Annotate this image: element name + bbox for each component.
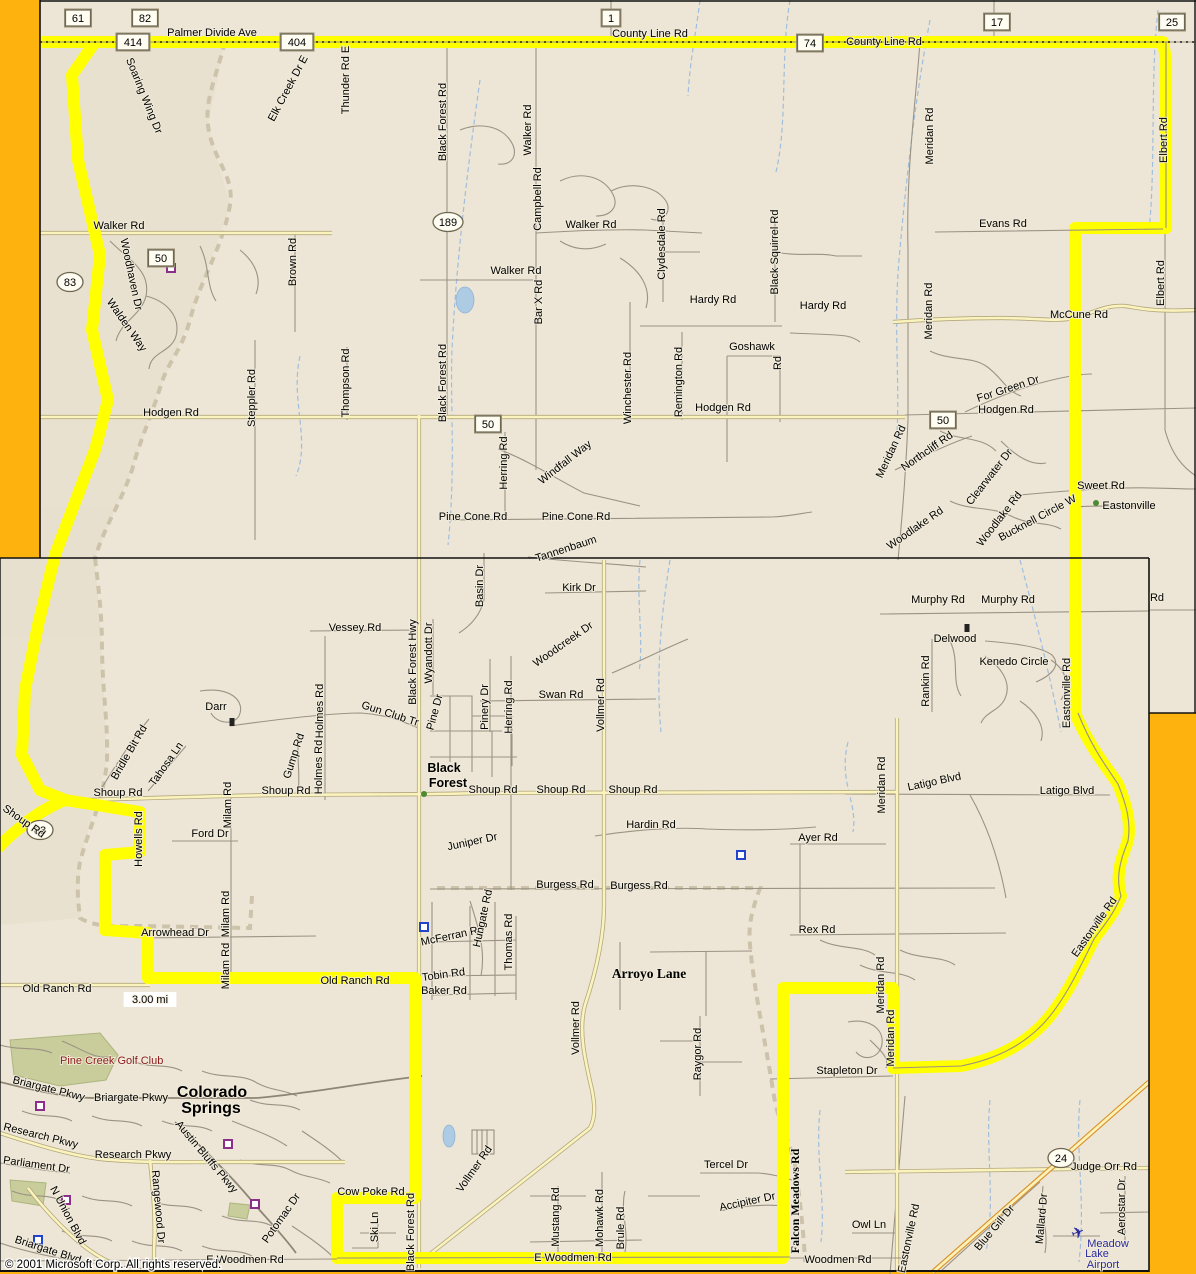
- place-label: Colorado: [177, 1084, 247, 1101]
- road-label: Vollmer Rd: [570, 1001, 582, 1055]
- road-label-text: Kenedo Circle: [979, 656, 1048, 668]
- route-shield-rect: 25: [1158, 13, 1186, 32]
- road-label-text: Falcon Meadows Rd: [788, 1148, 802, 1253]
- road-label: Shoup Rd: [469, 784, 518, 796]
- road-label: Murphy Rd: [981, 594, 1035, 606]
- road-label: Elbert Rd: [1158, 117, 1170, 163]
- road-label-text: Arrowhead Dr: [141, 927, 209, 939]
- place-label-text: Black: [427, 761, 460, 775]
- road-label-text: Howells Rd: [133, 811, 145, 867]
- road-label-text: Holmes Rd: [313, 740, 325, 794]
- road-label-text: Murphy Rd: [981, 594, 1035, 606]
- road-label: Shoup Rd: [537, 784, 586, 796]
- route-shield-rect: 50: [147, 249, 175, 268]
- place-label: Eastonville: [1102, 500, 1155, 512]
- road-label: Mustang Rd: [550, 1187, 562, 1246]
- road-label-text: Meridan Rd: [923, 283, 935, 340]
- road-label: Rd: [1150, 592, 1164, 604]
- road-label-text: Brown Rd: [287, 238, 299, 286]
- road-label-text: Herring Rd: [498, 436, 510, 489]
- road-label: Winchester Rd: [622, 352, 634, 424]
- road-label: Thompson Rd: [340, 348, 352, 417]
- road-label-text: Bar X Rd: [533, 280, 545, 325]
- road-label: Hardy Rd: [690, 294, 736, 306]
- road-label-text: Walker Rd: [522, 105, 534, 156]
- road-label: Kirk Dr: [562, 582, 596, 594]
- road-label: Howells Rd: [133, 811, 145, 867]
- road-label-text: Hodgen Rd: [695, 402, 751, 414]
- road-label-text: Stapleton Dr: [816, 1065, 877, 1077]
- road-label-text: Shoup Rd: [469, 784, 518, 796]
- road-label-text: Elbert Rd: [1158, 117, 1170, 163]
- road-label-text: Thomas Rd: [503, 914, 515, 971]
- road-label: Falcon Meadows Rd: [788, 1148, 802, 1253]
- road-label: Elbert Rd: [1155, 260, 1167, 306]
- place-label: Springs: [181, 1100, 241, 1117]
- road-label: Holmes Rd: [313, 740, 325, 794]
- road-label: Stapleton Dr: [816, 1065, 877, 1077]
- road-label: Black Squirrel Rd: [769, 210, 781, 295]
- place-label: Pine Creek Golf Club: [60, 1055, 163, 1067]
- road-label-text: Black Forest Rd: [437, 344, 449, 422]
- road-label: Rex Rd: [799, 924, 836, 936]
- road-label-text: Meridan Rd: [876, 757, 888, 814]
- road-label-text: Briargate Pkwy: [94, 1092, 168, 1104]
- poi-purple-square-icon: [251, 1200, 259, 1208]
- road-label-text: Basin Dr: [474, 565, 486, 608]
- road-label-text: © 2001 Microsoft Corp. All rights reserv…: [5, 1259, 221, 1271]
- road-label: Black Forest Hwy: [407, 619, 419, 705]
- road-label: Burgess Rd: [536, 879, 593, 891]
- road-label-text: Ski Ln: [369, 1212, 381, 1243]
- road-label-text: Cow Poke Rd: [337, 1186, 404, 1198]
- road-label-text: Darr: [205, 701, 227, 713]
- road-label: Rd: [772, 356, 784, 370]
- road-label: Brown Rd: [287, 238, 299, 286]
- road-label: Steppler Rd: [246, 369, 258, 427]
- town-dot-icon: [421, 791, 427, 797]
- road-label-text: Walker Rd: [491, 265, 542, 277]
- map-canvas[interactable]: ✈ 61824144041741725505050838318924 Palme…: [0, 0, 1196, 1274]
- road-label-text: Ford Dr: [191, 828, 229, 840]
- road-label: Vessey Rd: [329, 622, 382, 634]
- shield-number: 83: [64, 277, 76, 289]
- road-label-text: Woodmen Rd: [804, 1254, 871, 1266]
- road-label: Brule Rd: [615, 1207, 627, 1250]
- shield-number: 82: [139, 13, 151, 25]
- road-label: Milam Rd: [220, 891, 232, 937]
- road-label: Milam Rd: [222, 782, 234, 828]
- road-label: Meridan Rd: [876, 757, 888, 814]
- road-label-text: Milam Rd: [220, 891, 232, 937]
- road-label-text: Research Pkwy: [95, 1149, 172, 1161]
- road-label: Walker Rd: [522, 105, 534, 156]
- road-label-text: Brule Rd: [615, 1207, 627, 1250]
- road-label: Mohawk Rd: [594, 1189, 606, 1247]
- shield-number: 414: [124, 37, 142, 49]
- road-label-text: Rd: [772, 356, 784, 370]
- map-window: ✈ 61824144041741725505050838318924 Palme…: [0, 0, 1196, 1274]
- road-label: County Line Rd: [612, 28, 688, 40]
- road-label-text: 3.00 mi: [132, 994, 168, 1006]
- road-label: Raygor Rd: [692, 1028, 704, 1081]
- road-label: Walker Rd: [491, 265, 542, 277]
- road-label: Baker Rd: [421, 985, 467, 997]
- place-label-text: Eastonville: [1102, 500, 1155, 512]
- road-label-text: Milam Rd: [222, 782, 234, 828]
- shield-number: 1: [608, 13, 614, 25]
- road-label-text: Thompson Rd: [340, 348, 352, 417]
- road-label-text: Pinery Dr: [479, 684, 491, 730]
- road-label: Old Ranch Rd: [320, 975, 389, 987]
- road-label-text: McCune Rd: [1050, 309, 1108, 321]
- road-label: Shoup Rd: [609, 784, 658, 796]
- road-label-text: Mustang Rd: [550, 1187, 562, 1246]
- road-label-text: Mohawk Rd: [594, 1189, 606, 1247]
- place-label: Airport: [1087, 1259, 1119, 1271]
- road-label-text: Shoup Rd: [537, 784, 586, 796]
- road-label: Pinery Dr: [479, 684, 491, 730]
- route-shield-rect: 61: [64, 9, 92, 28]
- shield-number: 50: [937, 415, 949, 427]
- road-label-text: Goshawk: [729, 341, 775, 353]
- place-label: Black: [427, 761, 460, 775]
- road-label-text: Hardy Rd: [800, 300, 846, 312]
- road-label: Old Ranch Rd: [22, 983, 91, 995]
- road-label-text: E Woodmen Rd: [534, 1252, 611, 1264]
- road-label-text: Walker Rd: [566, 219, 617, 231]
- road-label-text: Remington Rd: [673, 347, 685, 417]
- road-label: Herring Rd: [498, 436, 510, 489]
- road-label-text: Vollmer Rd: [595, 678, 607, 732]
- road-label: Evans Rd: [979, 218, 1027, 230]
- road-label: Hardy Rd: [800, 300, 846, 312]
- road-label-text: Black Forest Hwy: [407, 619, 419, 705]
- road-label: Darr: [205, 701, 227, 713]
- road-label: Walker Rd: [94, 220, 145, 232]
- place-label: Forest: [429, 776, 468, 790]
- road-label-text: Walker Rd: [94, 220, 145, 232]
- road-label-text: Old Ranch Rd: [320, 975, 389, 987]
- road-label: Kenedo Circle: [979, 656, 1048, 668]
- road-label: Murphy Rd: [911, 594, 965, 606]
- road-label: Meridan Rd: [923, 283, 935, 340]
- road-label-text: Tercel Dr: [704, 1159, 748, 1171]
- road-label: Shoup Rd: [262, 785, 311, 797]
- road-label-text: Hodgen Rd: [143, 407, 199, 419]
- shield-number: 61: [72, 13, 84, 25]
- route-shield-rect: 1: [601, 9, 622, 28]
- road-label: Woodmen Rd: [804, 1254, 871, 1266]
- road-label: Wyandott Dr: [423, 622, 435, 683]
- road-label-text: Burgess Rd: [610, 880, 667, 892]
- road-label-text: Black Squirrel Rd: [769, 210, 781, 295]
- road-label: 3.00 mi: [124, 992, 177, 1007]
- road-label: Clydesdale Rd: [656, 208, 668, 280]
- road-label-text: Meridan Rd: [875, 957, 887, 1014]
- road-label: Pine Cone Rd: [542, 511, 611, 523]
- place-label-text: Arroyo Lane: [612, 966, 686, 981]
- road-label: Ski Ln: [369, 1212, 381, 1243]
- road-label: Aerostar Dr: [1116, 1179, 1128, 1236]
- place-label: Arroyo Lane: [612, 966, 686, 981]
- road-label: Latigo Blvd: [1040, 785, 1094, 797]
- shield-number: 404: [288, 37, 306, 49]
- road-label-text: Murphy Rd: [911, 594, 965, 606]
- route-shield-rect: 17: [983, 13, 1011, 32]
- road-label-text: Winchester Rd: [622, 352, 634, 424]
- road-label: Remington Rd: [673, 347, 685, 417]
- road-label-text: Meridan Rd: [924, 108, 936, 165]
- road-label: Meridan Rd: [875, 957, 887, 1014]
- road-label-text: Meridan Rd: [885, 1010, 897, 1067]
- road-label: Hodgen Rd: [978, 404, 1034, 416]
- road-label-text: Rankin Rd: [920, 655, 932, 706]
- road-label-text: Eastonville Rd: [1061, 658, 1073, 728]
- road-label-text: Vessey Rd: [329, 622, 382, 634]
- road-label: Rankin Rd: [920, 655, 932, 706]
- road-label: Swan Rd: [539, 689, 584, 701]
- road-label-text: Vollmer Rd: [570, 1001, 582, 1055]
- road-label: Palmer Divide Ave: [167, 27, 257, 39]
- shield-number: 189: [439, 217, 457, 229]
- road-label-text: Aerostar Dr: [1116, 1179, 1128, 1236]
- road-label: Basin Dr: [474, 565, 486, 608]
- road-label-text: Holmes Rd: [314, 684, 326, 738]
- poi-marker-icon: [230, 718, 235, 726]
- shield-number: 24: [1055, 1153, 1067, 1165]
- road-label-text: Delwood: [934, 633, 977, 645]
- road-label: Goshawk: [729, 341, 775, 353]
- road-label-text: Owl Ln: [852, 1219, 886, 1231]
- road-label-text: County Line Rd: [846, 36, 922, 48]
- road-label: Herring Rd: [503, 680, 515, 733]
- road-label: McCune Rd: [1050, 309, 1108, 321]
- road-label-text: Raygor Rd: [692, 1028, 704, 1081]
- road-label: E Woodmen Rd: [534, 1252, 611, 1264]
- shield-number: 25: [1166, 17, 1178, 29]
- road-label-text: Sweet Rd: [1077, 480, 1125, 492]
- road-label-text: Pine Cone Rd: [439, 511, 508, 523]
- road-label-text: Hardin Rd: [626, 819, 676, 831]
- road-label: Meridan Rd: [924, 108, 936, 165]
- road-label: Hodgen Rd: [695, 402, 751, 414]
- poi-blue-square-icon: [737, 851, 745, 859]
- road-label: Arrowhead Dr: [141, 927, 209, 939]
- road-label: Black Forest Rd: [405, 1193, 417, 1271]
- route-shield-rect: 50: [474, 415, 502, 434]
- road-label: Black Forest Rd: [437, 344, 449, 422]
- road-label-text: Clydesdale Rd: [656, 208, 668, 280]
- road-label-text: Elbert Rd: [1155, 260, 1167, 306]
- road-label: Thunder Rd E: [340, 46, 352, 114]
- road-label-text: Latigo Blvd: [1040, 785, 1094, 797]
- road-label: Hodgen Rd: [143, 407, 199, 419]
- road-label-text: Old Ranch Rd: [22, 983, 91, 995]
- road-label-text: Kirk Dr: [562, 582, 596, 594]
- road-label: Walker Rd: [566, 219, 617, 231]
- route-shield-rect: 404: [280, 33, 315, 52]
- road-label: Black Forest Rd: [437, 83, 449, 161]
- road-label-text: Rd: [1150, 592, 1164, 604]
- road-label: © 2001 Microsoft Corp. All rights reserv…: [5, 1259, 221, 1271]
- road-label-text: Herring Rd: [503, 680, 515, 733]
- road-label: Sweet Rd: [1077, 480, 1125, 492]
- town-dot-icon: [1093, 500, 1099, 506]
- road-label: Campbell Rd: [532, 167, 544, 231]
- route-shield-rect: 414: [116, 33, 151, 52]
- road-label-text: County Line Rd: [612, 28, 688, 40]
- road-label-text: Evans Rd: [979, 218, 1027, 230]
- place-label-text: Airport: [1087, 1259, 1119, 1271]
- road-label-text: Swan Rd: [539, 689, 584, 701]
- route-shield-oval: 189: [433, 213, 463, 232]
- road-label: Bar X Rd: [533, 280, 545, 325]
- road-label: Research Pkwy: [95, 1149, 172, 1161]
- road-label: Hardin Rd: [626, 819, 676, 831]
- road-label-text: Black Forest Rd: [405, 1193, 417, 1271]
- road-label: Vollmer Rd: [595, 678, 607, 732]
- road-label: Tercel Dr: [704, 1159, 748, 1171]
- shield-number: 17: [991, 17, 1003, 29]
- shield-number: 50: [482, 419, 494, 431]
- road-label: Thomas Rd: [503, 914, 515, 971]
- road-label-text: Ayer Rd: [798, 832, 838, 844]
- route-shield-rect: 82: [131, 9, 159, 28]
- road-label-text: Burgess Rd: [536, 879, 593, 891]
- road-label: Delwood: [934, 633, 977, 645]
- road-label-text: Judge Orr Rd: [1071, 1161, 1137, 1173]
- road-label: Burgess Rd: [610, 880, 667, 892]
- poi-purple-square-icon: [36, 1102, 44, 1110]
- road-label-text: Shoup Rd: [262, 785, 311, 797]
- road-label-text: Pine Cone Rd: [542, 511, 611, 523]
- poi-marker-icon: [965, 624, 970, 632]
- road-label: Ayer Rd: [798, 832, 838, 844]
- place-label-text: Pine Creek Golf Club: [60, 1055, 163, 1067]
- road-label: Judge Orr Rd: [1071, 1161, 1137, 1173]
- road-label-text: Shoup Rd: [609, 784, 658, 796]
- road-label: Milam Rd: [220, 943, 232, 989]
- shield-number: 74: [804, 38, 816, 50]
- route-shield-rect: 74: [796, 34, 824, 53]
- road-label: Owl Ln: [852, 1219, 886, 1231]
- route-shield-oval: 83: [57, 273, 83, 292]
- road-label: Meridan Rd: [885, 1010, 897, 1067]
- poi-blue-square-icon: [420, 923, 428, 931]
- road-label-text: Hardy Rd: [690, 294, 736, 306]
- place-label-text: Colorado: [177, 1084, 247, 1101]
- place-label-text: Forest: [429, 776, 468, 790]
- road-label: Holmes Rd: [314, 684, 326, 738]
- road-label-text: Milam Rd: [220, 943, 232, 989]
- road-label: Eastonville Rd: [1061, 658, 1073, 728]
- road-label: Pine Cone Rd: [439, 511, 508, 523]
- place-label-text: Springs: [181, 1100, 241, 1117]
- road-label: County Line Rd: [846, 36, 922, 48]
- road-label: Ford Dr: [191, 828, 229, 840]
- road-label: Shoup Rd: [94, 787, 143, 799]
- road-label-text: Palmer Divide Ave: [167, 27, 257, 39]
- poi-purple-square-icon: [224, 1140, 232, 1148]
- road-label-text: Steppler Rd: [246, 369, 258, 427]
- shield-number: 50: [155, 253, 167, 265]
- route-shield-rect: 50: [929, 411, 957, 430]
- road-label-text: Campbell Rd: [532, 167, 544, 231]
- road-label-text: Thunder Rd E: [340, 46, 352, 114]
- road-label-text: Hodgen Rd: [978, 404, 1034, 416]
- road-label: Cow Poke Rd: [337, 1186, 404, 1198]
- road-label-text: Black Forest Rd: [437, 83, 449, 161]
- road-label-text: Shoup Rd: [94, 787, 143, 799]
- road-label-text: Baker Rd: [421, 985, 467, 997]
- road-label-text: Wyandott Dr: [423, 622, 435, 683]
- road-label: Briargate Pkwy: [94, 1092, 168, 1104]
- road-label-text: Rex Rd: [799, 924, 836, 936]
